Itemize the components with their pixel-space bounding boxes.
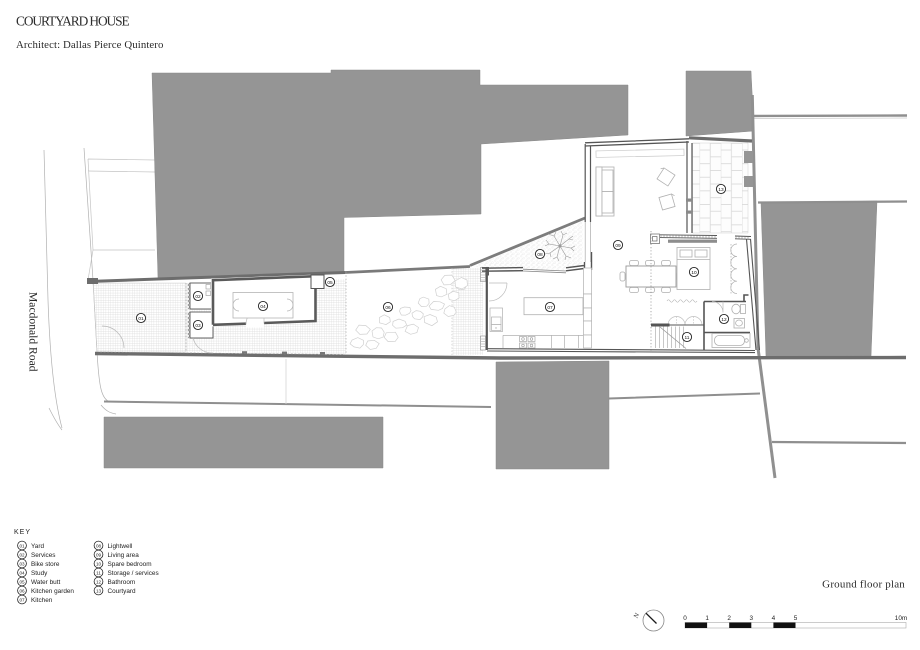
svg-text:03: 03 (195, 323, 201, 329)
svg-text:13: 13 (718, 187, 724, 193)
svg-text:Ground floor plan: Ground floor plan (822, 579, 905, 591)
svg-text:05: 05 (19, 580, 25, 585)
svg-text:06: 06 (19, 589, 25, 594)
svg-text:Living area: Living area (108, 552, 140, 559)
svg-text:09: 09 (615, 243, 621, 249)
svg-text:N: N (633, 612, 642, 620)
svg-text:10: 10 (691, 270, 697, 276)
svg-text:Kitchen garden: Kitchen garden (31, 588, 74, 595)
svg-text:Services: Services (31, 552, 56, 559)
svg-text:Spare bedroom: Spare bedroom (108, 561, 152, 568)
svg-text:Lightwell: Lightwell (108, 543, 133, 550)
svg-text:12: 12 (96, 580, 102, 585)
svg-text:07: 07 (19, 598, 25, 603)
svg-text:2: 2 (727, 615, 731, 622)
svg-text:05: 05 (327, 280, 333, 286)
svg-text:11: 11 (96, 571, 101, 576)
svg-text:3: 3 (750, 615, 754, 622)
svg-text:01: 01 (19, 544, 25, 549)
svg-text:08: 08 (96, 544, 102, 549)
svg-text:Study: Study (31, 570, 48, 577)
svg-text:4: 4 (772, 615, 776, 622)
svg-text:03: 03 (19, 562, 25, 567)
svg-text:Bathroom: Bathroom (108, 579, 136, 586)
svg-text:Water butt: Water butt (31, 579, 60, 586)
svg-text:Yard: Yard (31, 543, 44, 550)
svg-text:10: 10 (96, 562, 102, 567)
svg-text:Courtyard: Courtyard (108, 588, 137, 595)
svg-text:5: 5 (794, 615, 798, 622)
svg-text:Macdonald Road: Macdonald Road (27, 292, 40, 372)
svg-text:02: 02 (19, 553, 25, 558)
svg-text:0: 0 (683, 615, 687, 622)
svg-text:09: 09 (96, 553, 102, 558)
svg-text:02: 02 (195, 294, 201, 300)
svg-text:01: 01 (138, 316, 144, 322)
svg-text:12: 12 (721, 317, 727, 323)
svg-text:Bike store: Bike store (31, 561, 60, 568)
svg-text:08: 08 (537, 252, 543, 258)
svg-text:COURTYARD HOUSE: COURTYARD HOUSE (16, 14, 129, 29)
svg-text:11: 11 (685, 335, 690, 341)
svg-text:KEY: KEY (14, 529, 31, 536)
svg-text:07: 07 (547, 305, 553, 311)
svg-text:1: 1 (705, 615, 709, 622)
svg-text:06: 06 (385, 305, 391, 311)
svg-text:04: 04 (260, 304, 266, 310)
svg-text:Architect: Dallas Pierce Quint: Architect: Dallas Pierce Quintero (16, 39, 164, 51)
svg-text:04: 04 (19, 571, 25, 576)
svg-text:13: 13 (96, 589, 102, 594)
svg-text:Storage / services: Storage / services (108, 570, 159, 577)
svg-text:Kitchen: Kitchen (31, 597, 53, 604)
svg-text:10m: 10m (895, 615, 907, 622)
